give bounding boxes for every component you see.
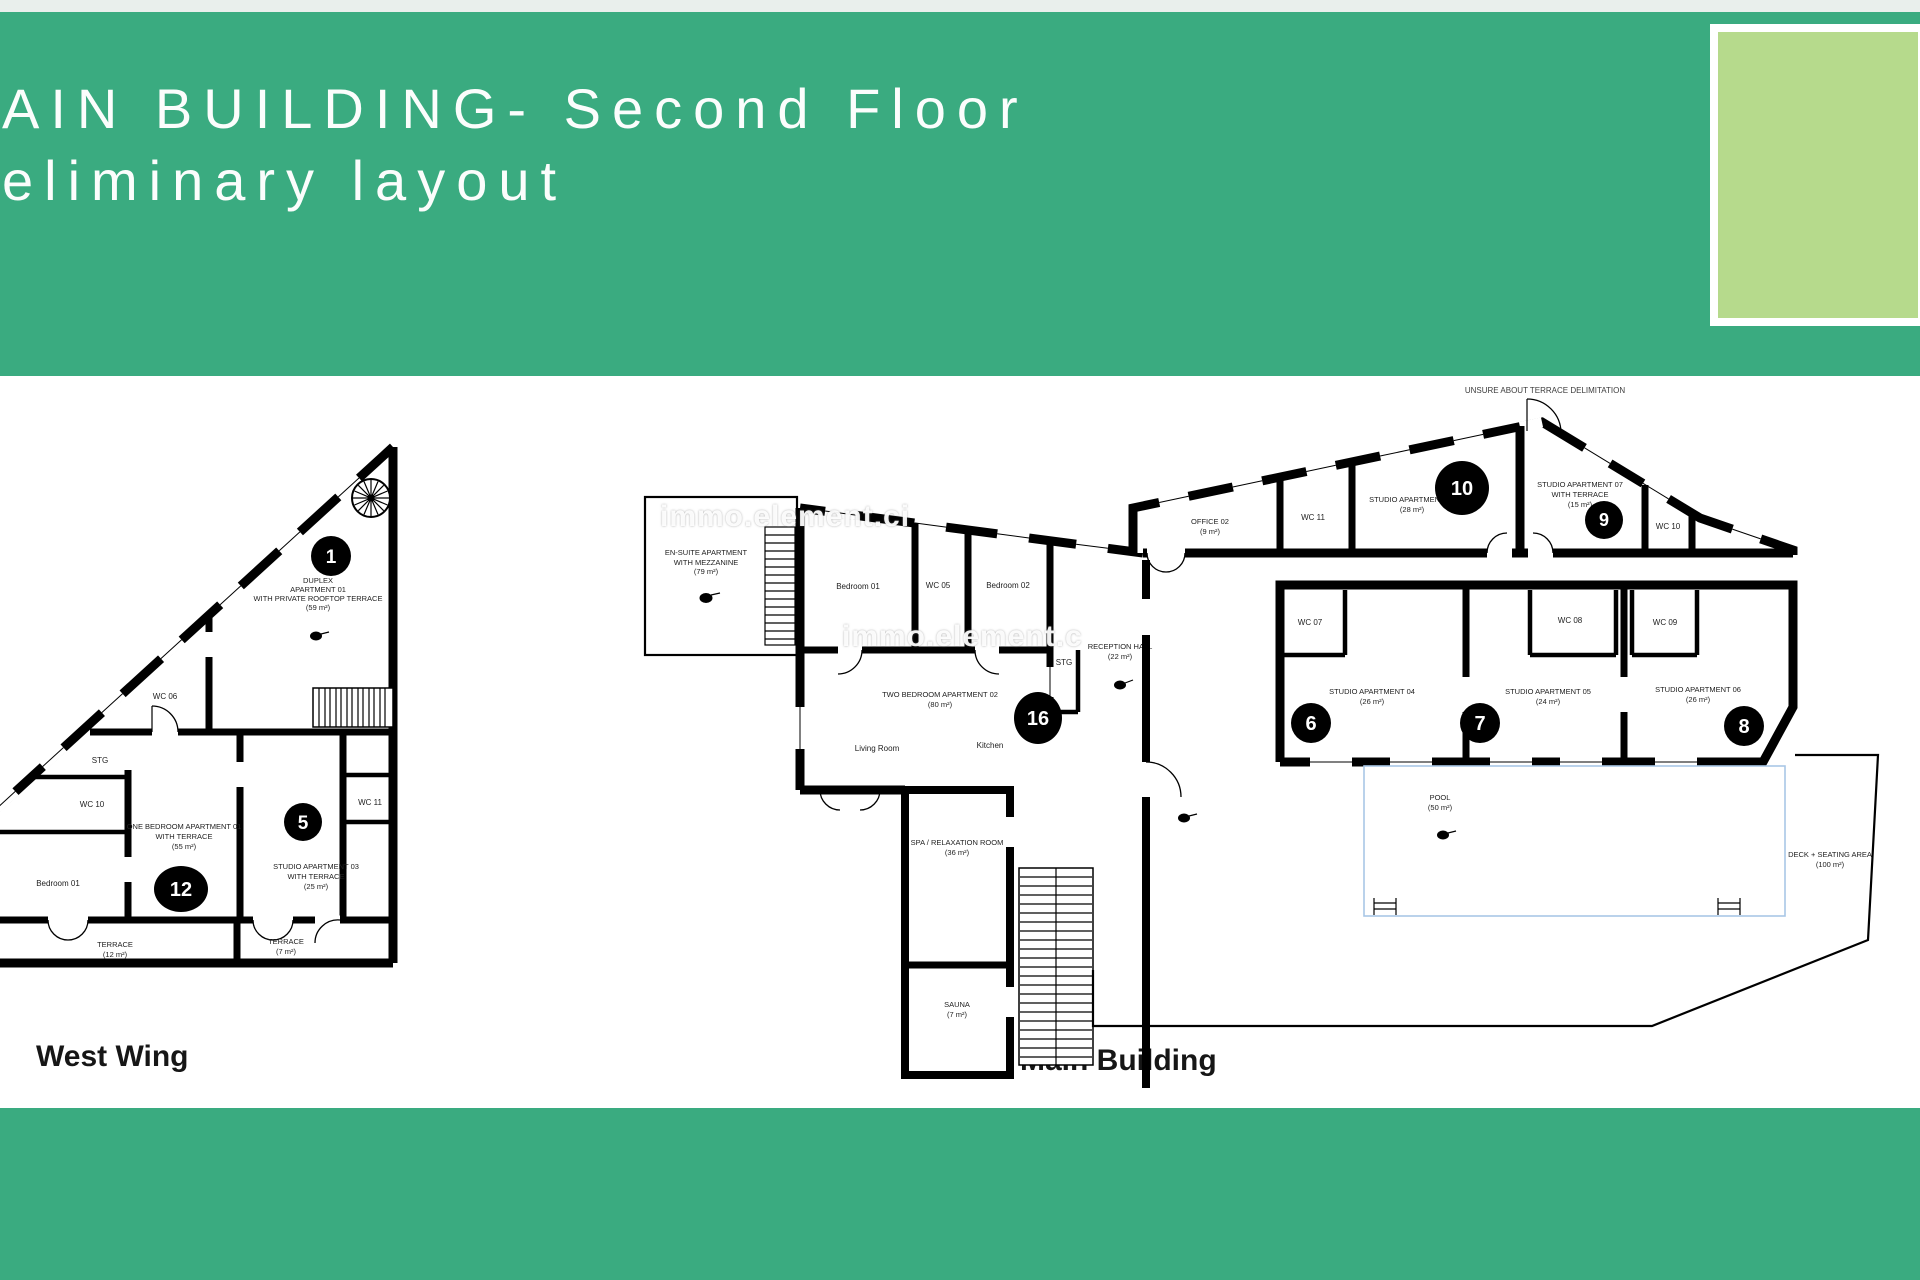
unit-label: WITH TERRACE bbox=[156, 832, 213, 841]
room-label: WC 05 bbox=[926, 581, 951, 590]
area-label: (100 m²) bbox=[1816, 860, 1845, 869]
unit-key-number: 10 bbox=[1451, 478, 1473, 500]
unit-key-number: 5 bbox=[298, 813, 309, 834]
room-label: SPA / RELAXATION ROOM bbox=[911, 838, 1004, 847]
unit-key-number: 6 bbox=[1305, 713, 1316, 735]
room-label: Bedroom 01 bbox=[836, 582, 880, 591]
stairs bbox=[765, 527, 795, 645]
area-label: (12 m²) bbox=[103, 950, 128, 959]
unit-key-number: 9 bbox=[1599, 510, 1609, 530]
room-label: WC 10 bbox=[1656, 522, 1681, 531]
room-label: Kitchen bbox=[977, 741, 1004, 750]
watermark: immo.element.ci bbox=[660, 500, 910, 534]
room-label: TERRACE bbox=[268, 937, 304, 946]
accent-box bbox=[1710, 24, 1920, 326]
room-label: WC 07 bbox=[1298, 618, 1323, 627]
room-label: WC 06 bbox=[153, 692, 178, 701]
room-label: Bedroom 02 bbox=[986, 581, 1030, 590]
terrace-note: UNSURE ABOUT TERRACE DELIMITATION bbox=[1465, 386, 1626, 395]
unit-key-number: 12 bbox=[170, 879, 192, 901]
room-label: Living Room bbox=[855, 744, 900, 753]
compass-icon bbox=[1437, 831, 1456, 840]
area-label: (59 m²) bbox=[306, 603, 331, 612]
unit-key-number: 8 bbox=[1738, 716, 1749, 738]
terrace-outline bbox=[1093, 755, 1878, 1026]
unit-label: EN-SUITE APARTMENT bbox=[665, 548, 748, 557]
area-label: (9 m²) bbox=[1200, 527, 1220, 536]
unit-label: STUDIO APARTMENT 07 bbox=[1537, 480, 1623, 489]
area-label: (24 m²) bbox=[1536, 697, 1561, 706]
room-label: WC 11 bbox=[1301, 513, 1325, 522]
area-label: (28 m²) bbox=[1400, 505, 1425, 514]
slide-title-line1: AIN BUILDING- Second Floor bbox=[2, 76, 1029, 141]
stairs bbox=[313, 688, 393, 727]
room-label: WC 10 bbox=[80, 800, 105, 809]
area-label: (25 m²) bbox=[304, 882, 329, 891]
unit-label: STUDIO APARTMENT 04 bbox=[1329, 687, 1415, 696]
main-building-plan: UNSURE ABOUT TERRACE DELIMITATION EN-SUI… bbox=[645, 386, 1878, 1088]
room-label: TERRACE bbox=[97, 940, 133, 949]
footer-band bbox=[0, 1108, 1920, 1280]
unit-key-number: 7 bbox=[1474, 713, 1485, 735]
unit-key-number: 16 bbox=[1027, 708, 1049, 730]
area-label: (7 m²) bbox=[276, 947, 296, 956]
compass-icon bbox=[1178, 814, 1197, 823]
top-strip bbox=[0, 0, 1920, 12]
room-label: Bedroom 01 bbox=[36, 879, 80, 888]
room-label: OFFICE 02 bbox=[1191, 517, 1229, 526]
slide-title-line2: eliminary layout bbox=[2, 148, 567, 213]
area-label: (36 m²) bbox=[945, 848, 970, 857]
floor-plan-canvas: 1 5 12 DUPLEX APARTMENT 01 WITH PRIVATE … bbox=[0, 377, 1920, 1115]
unit-label: WITH PRIVATE ROOFTOP TERRACE bbox=[254, 594, 383, 603]
stairs bbox=[1019, 868, 1093, 1065]
unit-label: STUDIO APARTMENT 03 bbox=[273, 862, 359, 871]
spiral-stair-icon bbox=[352, 479, 390, 517]
area-label: (15 m²) bbox=[1568, 500, 1593, 509]
area-label: (26 m²) bbox=[1360, 697, 1385, 706]
area-label: (80 m²) bbox=[928, 700, 953, 709]
slide: AIN BUILDING- Second Floor eliminary lay… bbox=[0, 0, 1920, 1280]
room-label: WC 09 bbox=[1653, 618, 1678, 627]
unit-key-number: 1 bbox=[326, 547, 337, 568]
unit-label: ONE BEDROOM APARTMENT 01 bbox=[127, 822, 242, 831]
room-label: SAUNA bbox=[944, 1000, 970, 1009]
unit-label: APARTMENT 01 bbox=[290, 585, 346, 594]
area-label: (50 m²) bbox=[1428, 803, 1453, 812]
unit-label: STUDIO APARTMENT 06 bbox=[1655, 685, 1741, 694]
pool-ladder-icon bbox=[1374, 898, 1396, 915]
area-label: (7 m²) bbox=[947, 1010, 967, 1019]
pool: POOL (50 m²) bbox=[1364, 766, 1785, 916]
area-label: (22 m²) bbox=[1108, 652, 1133, 661]
pool-ladder-icon bbox=[1718, 898, 1740, 915]
room-label: WC 11 bbox=[358, 798, 382, 807]
unit-label: WITH TERRACE bbox=[288, 872, 345, 881]
watermark: immo.element.c bbox=[842, 620, 1083, 654]
unit-label: WITH MEZZANINE bbox=[674, 558, 739, 567]
spa-block: SPA / RELAXATION ROOM (36 m²) SAUNA (7 m… bbox=[905, 790, 1010, 1075]
area-label: (79 m²) bbox=[694, 567, 719, 576]
area-label: (55 m²) bbox=[172, 842, 197, 851]
room-label: STG bbox=[92, 756, 108, 765]
room-label: DECK + SEATING AREA bbox=[1788, 850, 1872, 859]
unit-label: STUDIO APARTMENT 05 bbox=[1505, 687, 1591, 696]
room-label: WC 08 bbox=[1558, 616, 1583, 625]
unit-label: WITH TERRACE bbox=[1552, 490, 1609, 499]
unit-label: DUPLEX bbox=[303, 576, 333, 585]
west-wing-plan: 1 5 12 DUPLEX APARTMENT 01 WITH PRIVATE … bbox=[0, 447, 393, 963]
room-label: STG bbox=[1056, 658, 1072, 667]
area-label: (26 m²) bbox=[1686, 695, 1711, 704]
unit-label: TWO BEDROOM APARTMENT 02 bbox=[882, 690, 998, 699]
room-label: POOL bbox=[1430, 793, 1451, 802]
